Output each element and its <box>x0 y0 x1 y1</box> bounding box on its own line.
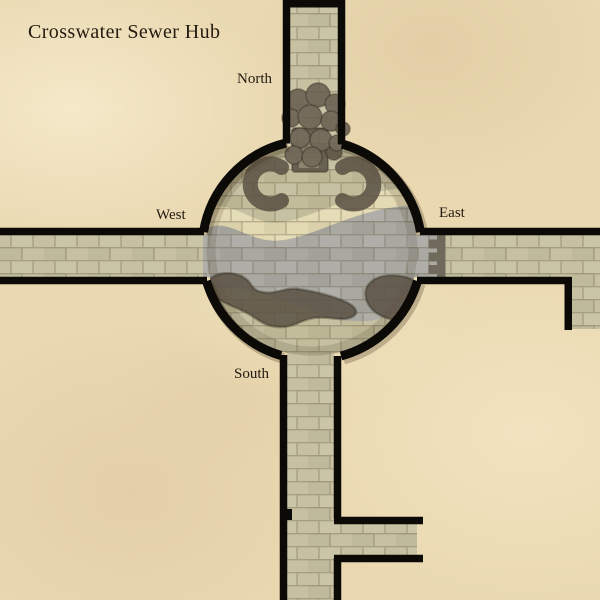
map-title: Crosswater Sewer Hub <box>28 21 220 44</box>
label-west: West <box>156 207 186 224</box>
map-canvas <box>0 0 600 600</box>
sewer-map: Crosswater Sewer Hub North West East Sou… <box>0 0 600 600</box>
label-south: South <box>234 366 269 383</box>
label-north: North <box>237 71 272 88</box>
south-door-marker <box>283 509 292 520</box>
label-east: East <box>439 205 465 222</box>
